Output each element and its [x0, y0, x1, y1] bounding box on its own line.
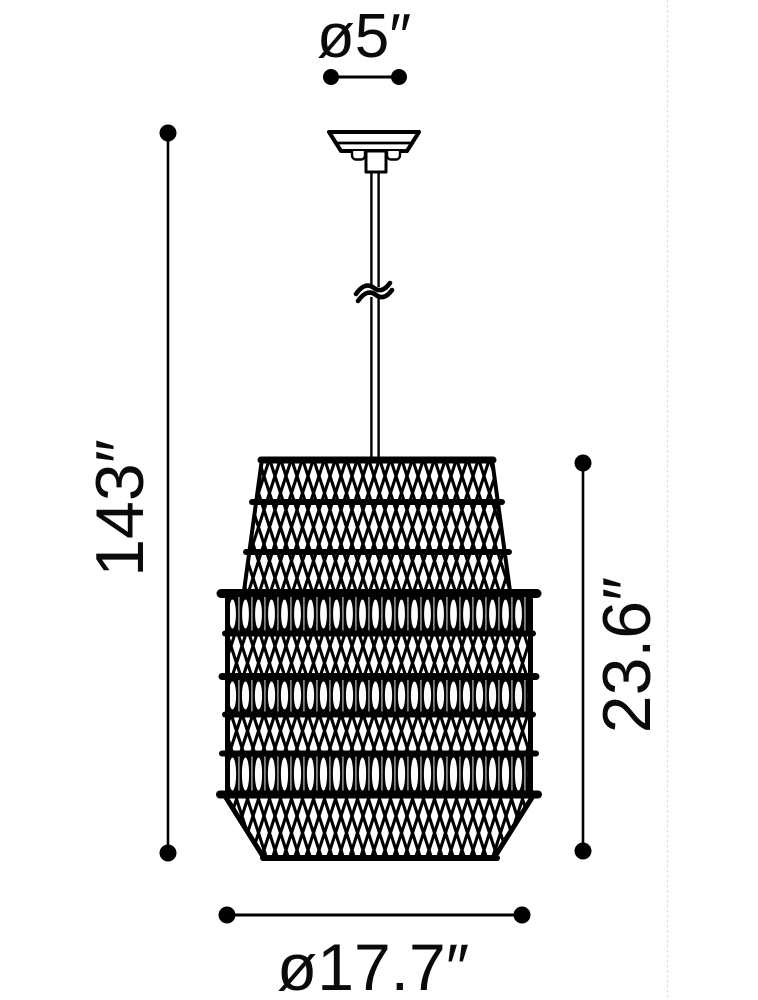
body-band-eye-1: [225, 597, 533, 631]
body-band-cross-2: [225, 713, 533, 754]
canopy-dish: [329, 132, 419, 151]
body-band-eye-2: [225, 679, 533, 712]
dim-endpoint-dot: [514, 907, 531, 924]
dim-endpoint-dot: [575, 455, 592, 472]
dim-endpoint-dot: [323, 69, 339, 85]
dim-endpoint-dot: [219, 907, 236, 924]
shade-diameter-label: ø17.7″: [277, 930, 469, 1000]
body-band-eye-3: [225, 755, 533, 793]
dim-endpoint-dot: [160, 125, 177, 142]
dim-endpoint-dot: [575, 843, 592, 860]
canopy-screw-left: [352, 151, 365, 160]
lamp-shade: [220, 459, 538, 858]
shade-bottom-taper-weave: [225, 796, 533, 858]
shade-neck-weave: [244, 459, 510, 591]
diagram-canvas: ø5″ 143″ 23.6″ ø17.7″: [0, 0, 758, 1000]
dim-endpoint-dot: [160, 845, 177, 862]
pendant-lamp-dimension-diagram: ø5″ 143″ 23.6″ ø17.7″: [0, 0, 758, 1000]
canopy-stem: [366, 151, 386, 172]
canopy-diameter-label: ø5″: [317, 2, 411, 71]
shade-height-label: 23.6″: [589, 577, 665, 733]
body-band-cross-1: [225, 634, 533, 678]
overall-height-label: 143″: [82, 439, 158, 577]
dim-endpoint-dot: [391, 69, 407, 85]
canopy-screw-right: [387, 151, 400, 160]
